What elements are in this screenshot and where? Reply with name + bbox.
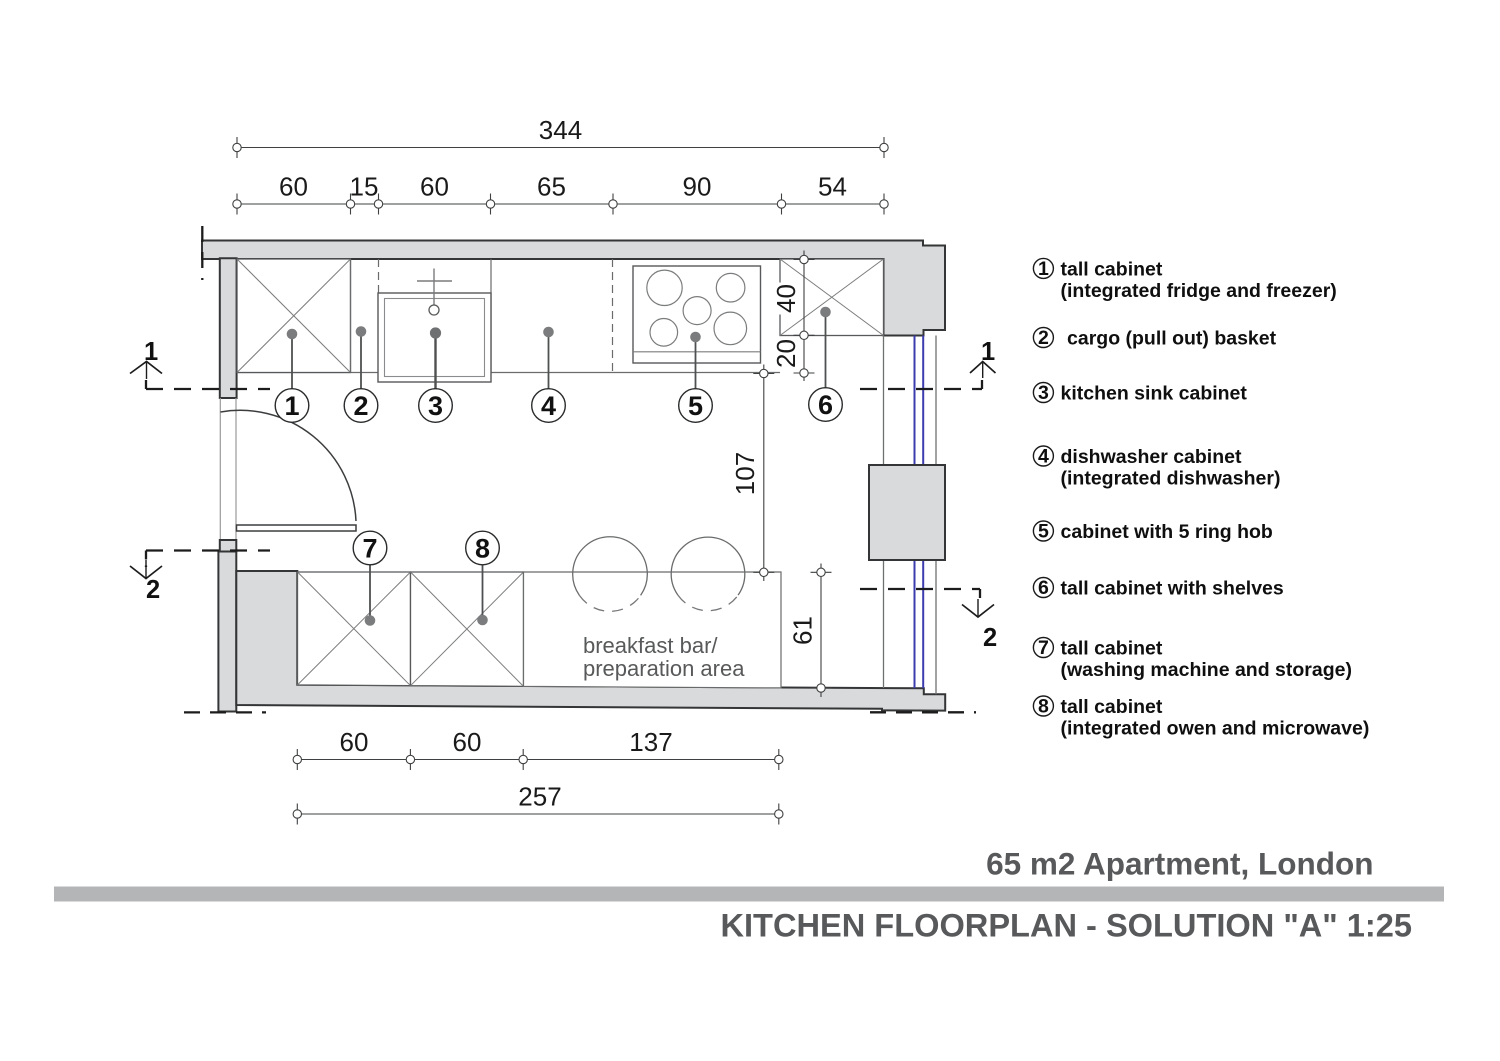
svg-text:4: 4 xyxy=(1038,445,1049,467)
svg-text:15: 15 xyxy=(350,172,379,202)
svg-text:tall cabinet with shelves: tall cabinet with shelves xyxy=(1061,578,1284,600)
svg-text:(integrated owen and microwave: (integrated owen and microwave) xyxy=(1061,718,1370,740)
svg-text:(integrated fridge and freezer: (integrated fridge and freezer) xyxy=(1061,280,1337,302)
svg-text:(integrated dishwasher): (integrated dishwasher) xyxy=(1061,468,1281,490)
svg-text:344: 344 xyxy=(539,115,582,145)
svg-text:preparation area: preparation area xyxy=(583,656,745,681)
svg-text:1: 1 xyxy=(981,338,995,366)
svg-text:cargo (pull out) basket: cargo (pull out) basket xyxy=(1067,328,1277,350)
svg-text:8: 8 xyxy=(1038,695,1049,717)
svg-text:7: 7 xyxy=(1038,637,1049,659)
svg-text:1: 1 xyxy=(144,338,158,366)
svg-text:60: 60 xyxy=(279,172,308,202)
svg-text:5: 5 xyxy=(688,391,703,421)
svg-text:tall cabinet: tall cabinet xyxy=(1061,259,1163,281)
svg-text:3: 3 xyxy=(1038,382,1049,404)
svg-text:5: 5 xyxy=(1038,520,1049,542)
svg-text:2: 2 xyxy=(983,624,997,652)
svg-text:90: 90 xyxy=(683,172,712,202)
svg-text:1: 1 xyxy=(284,391,299,421)
svg-text:60: 60 xyxy=(453,727,482,757)
svg-text:137: 137 xyxy=(629,727,672,757)
svg-text:2: 2 xyxy=(1038,327,1049,349)
svg-text:(washing machine and storage): (washing machine and storage) xyxy=(1061,659,1352,681)
svg-text:8: 8 xyxy=(475,534,490,564)
svg-text:dishwasher cabinet: dishwasher cabinet xyxy=(1061,446,1242,468)
svg-text:20: 20 xyxy=(771,339,801,368)
svg-text:cabinet with 5 ring hob: cabinet with 5 ring hob xyxy=(1061,521,1273,543)
svg-text:kitchen sink cabinet: kitchen sink cabinet xyxy=(1061,383,1248,405)
svg-text:2: 2 xyxy=(146,576,160,604)
svg-text:257: 257 xyxy=(518,782,561,812)
svg-text:61: 61 xyxy=(788,616,818,645)
svg-text:tall cabinet: tall cabinet xyxy=(1061,696,1163,718)
svg-text:60: 60 xyxy=(420,172,449,202)
svg-text:7: 7 xyxy=(362,534,377,564)
svg-text:KITCHEN FLOORPLAN - SOLUTION ": KITCHEN FLOORPLAN - SOLUTION "A" 1:25 xyxy=(720,907,1412,944)
svg-text:107: 107 xyxy=(730,452,760,495)
svg-text:40: 40 xyxy=(771,284,801,313)
svg-text:6: 6 xyxy=(1038,577,1049,599)
svg-text:65: 65 xyxy=(537,172,566,202)
svg-text:60: 60 xyxy=(340,727,369,757)
svg-text:4: 4 xyxy=(541,391,556,421)
svg-text:54: 54 xyxy=(818,172,847,202)
svg-text:6: 6 xyxy=(818,390,833,420)
svg-text:tall cabinet: tall cabinet xyxy=(1061,638,1163,660)
svg-text:breakfast bar/: breakfast bar/ xyxy=(583,633,718,658)
svg-text:2: 2 xyxy=(353,391,368,421)
svg-text:65 m2 Apartment, London: 65 m2 Apartment, London xyxy=(986,846,1373,882)
svg-text:3: 3 xyxy=(428,391,443,421)
svg-text:1: 1 xyxy=(1038,258,1049,280)
